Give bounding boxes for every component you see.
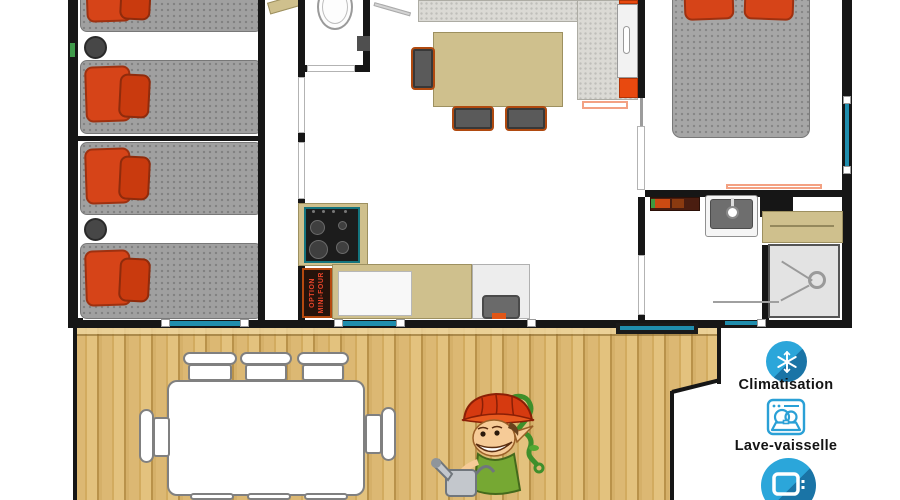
window-bracket [396, 319, 405, 327]
snowflake-icon [775, 350, 799, 374]
heater-outline [582, 101, 628, 109]
burner [336, 241, 349, 254]
tv-icon [761, 458, 816, 500]
patio-chair-back [190, 493, 234, 500]
window-bracket [757, 319, 766, 327]
wall-bedrooms-corridor [258, 0, 265, 320]
window [845, 102, 849, 170]
window-bracket [161, 319, 170, 327]
pillow [118, 155, 151, 201]
patio-chair-back [304, 493, 348, 500]
kitchen-counter-top [418, 0, 578, 22]
pillow [119, 0, 152, 21]
dining-chair [505, 106, 547, 131]
patio-table [167, 380, 365, 496]
dishwasher-icon [766, 398, 806, 436]
mascot-gardener-elf [430, 386, 580, 500]
oven-option-label-line1: OPTION [309, 278, 316, 308]
wall-living-master [638, 0, 645, 98]
cooktop-knob [344, 210, 347, 213]
mini-oven: OPTION MINI-FOUR [302, 268, 332, 318]
kitchen-door-ajar [373, 2, 411, 16]
dining-chair [452, 106, 494, 131]
patio-chair-seat [245, 364, 287, 381]
faucet [726, 206, 739, 219]
wc-sliding-door [307, 65, 355, 72]
bedside-stool [84, 218, 107, 241]
counter-inset [338, 271, 412, 316]
bathroom-door [638, 255, 645, 315]
radiator-accent [672, 199, 684, 208]
wall-bedroom-divider [78, 136, 265, 141]
deck-border-right [717, 328, 721, 384]
dining-table [433, 32, 563, 107]
pillow [118, 73, 151, 119]
deck-border-left [73, 328, 77, 500]
window [340, 321, 400, 326]
radiator-accent [654, 199, 670, 208]
patio-chair-seat [188, 364, 232, 381]
wall-corner-step [68, 318, 83, 328]
hallway-door [298, 77, 305, 133]
burner [310, 220, 325, 235]
patio-chair-back [247, 493, 291, 500]
shower-drain [808, 271, 826, 289]
cooktop-knob [312, 210, 315, 213]
window-bracket [843, 166, 851, 174]
window-bracket [334, 319, 343, 327]
radiator-accent-green [651, 199, 655, 208]
cooktop-knob [332, 210, 335, 213]
patio-chair-seat [365, 414, 382, 454]
window-bracket [240, 319, 249, 327]
patio-chair-back [139, 409, 154, 463]
burner [309, 240, 328, 259]
window [168, 321, 244, 326]
shower [768, 244, 840, 318]
cooktop-knob [322, 210, 325, 213]
vent-left-wall [70, 43, 75, 57]
master-bedroom-door [637, 126, 645, 190]
oven-option-label-line2: MINI-FOUR [318, 272, 325, 313]
pillow [743, 0, 794, 21]
deck-edge-shadow [75, 334, 720, 336]
lave-vaisselle-label: Lave-vaisselle [706, 438, 866, 454]
burner [338, 221, 347, 230]
tv-badge [761, 458, 816, 500]
sink-accent [492, 313, 506, 319]
wall-thin-segment [640, 98, 643, 128]
shelf-outline [726, 184, 822, 189]
hallway-door [298, 142, 305, 199]
deck-border-lower-right [670, 391, 674, 500]
pillow [118, 257, 151, 303]
fridge-accent-bottom [619, 78, 638, 98]
door-swing-line [713, 301, 779, 303]
patio-chair-back [381, 407, 396, 461]
bathroom-counter [762, 211, 843, 243]
sliding-bay-door [620, 326, 694, 330]
counter-line [770, 225, 834, 227]
pillow [683, 0, 734, 21]
double-bed [672, 0, 810, 138]
patio-chair-seat [153, 417, 170, 457]
bedside-stool [84, 36, 107, 59]
floorplan-image: OPTION MINI-FOUR [0, 0, 900, 500]
toilet-cistern [357, 36, 370, 51]
dining-chair [411, 47, 435, 90]
window-bracket [843, 96, 851, 104]
window-bracket [527, 319, 536, 327]
patio-chair-seat [302, 364, 344, 381]
climatisation-badge [766, 341, 807, 382]
climatisation-label: Climatisation [706, 377, 866, 393]
refrigerator-handle [623, 26, 630, 54]
window [725, 321, 761, 325]
